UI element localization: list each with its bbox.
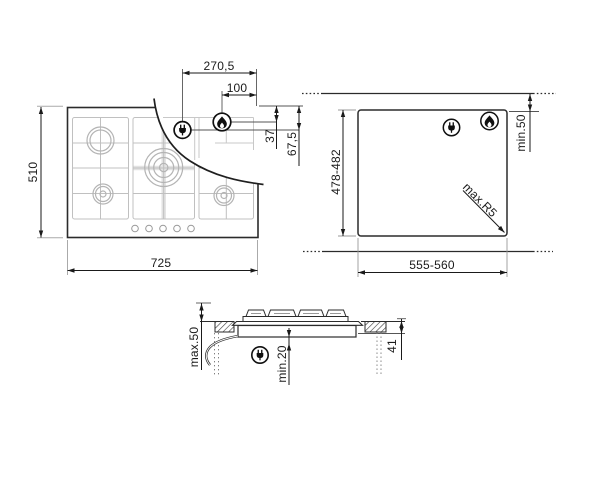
- dim-cutout-width-label: 555-560: [409, 258, 454, 272]
- dim-gas-from-right-label: 100: [227, 81, 248, 95]
- dim-plug-from-right-label: 270,5: [203, 59, 234, 73]
- installation-diagram: [0, 0, 600, 480]
- dim-width-label: 725: [151, 256, 172, 270]
- dim-plug-from-top-label: 67,5: [285, 132, 299, 156]
- plug-icon: [443, 119, 459, 135]
- flame-icon: [213, 113, 231, 131]
- dim-clearance-below-label: min.20: [275, 345, 289, 382]
- dim-depth-below-worktop-label: 41: [385, 339, 399, 353]
- plug-icon: [174, 122, 191, 139]
- hob-body-section: [238, 326, 356, 338]
- hob-flange: [233, 322, 363, 326]
- flame-icon: [481, 112, 498, 129]
- dim-depth-label: 510: [26, 162, 40, 183]
- dim-height-above-label: max.50: [187, 327, 201, 368]
- installation-side-view: [196, 303, 406, 385]
- burner-caps: [246, 310, 346, 317]
- installation-diagram-page: 270,5 100 510 725 37 67,5 478-482 555-56…: [0, 0, 600, 480]
- plug-icon: [252, 347, 268, 363]
- dim-cutout-depth-label: 478-482: [329, 149, 343, 194]
- dim-rear-clearance-label: min.50: [514, 114, 528, 151]
- hob-top-view: [37, 69, 303, 275]
- cabinet-dashed-lines: [215, 333, 382, 377]
- power-cable: [206, 336, 238, 365]
- dim-gas-from-top-label: 37: [263, 129, 277, 143]
- pan-support-rail: [243, 317, 348, 322]
